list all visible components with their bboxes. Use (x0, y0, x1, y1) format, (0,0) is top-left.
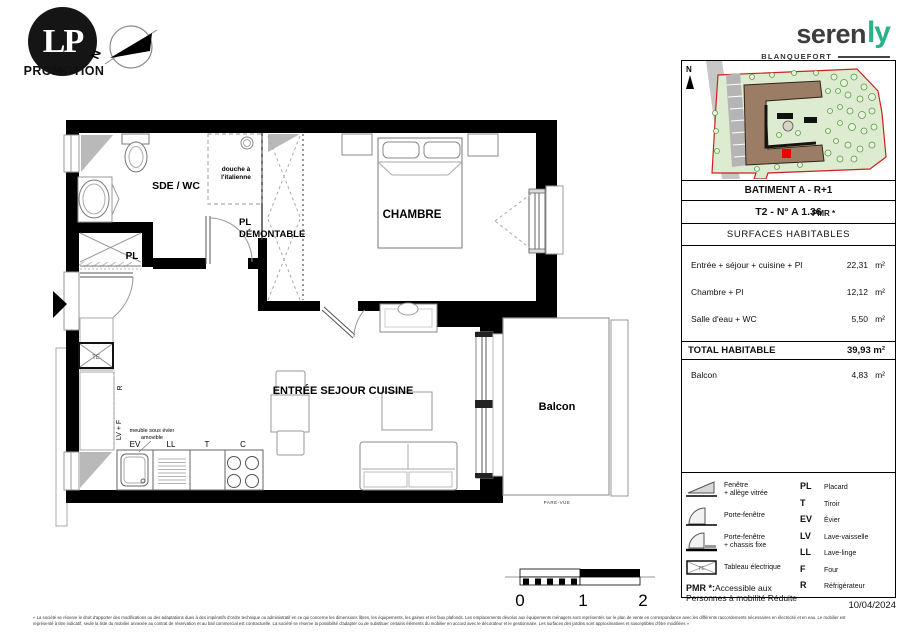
balcony-door (475, 332, 503, 478)
surfaces-title: SURFACES HABITABLES (682, 224, 895, 246)
site-map-north-label: N (686, 65, 692, 74)
pl-demontable-label-2: DÉMONTABLE (239, 229, 305, 240)
sink (121, 454, 148, 486)
scale-0: 0 (515, 591, 524, 610)
abbr-row: FFour (800, 564, 892, 574)
balcon-row: Balcon 4,83 m² (682, 360, 895, 380)
surface-row: Chambre + Pl 12,12 m² (691, 287, 885, 297)
legend-abbreviations: PLPlacard TTiroir EVÉvier LVLave-vaissel… (800, 481, 892, 597)
ll-label: LL (167, 440, 176, 449)
total-row: TOTAL HABITABLE 39,93 m² (682, 341, 895, 360)
legal-line-2: représenté à titre indicatif, seule la l… (33, 621, 895, 627)
pillow (424, 142, 460, 158)
porte-fenetre-chassis-icon (686, 531, 718, 553)
unit-title-row: T2 - N° A 1.36 PMR * (682, 201, 895, 224)
plan-date: 10/04/2024 (681, 600, 896, 611)
shower-label-2: l'italienne (221, 174, 251, 181)
legal-text: « La société se réserve le droit d'appor… (33, 615, 895, 626)
floorplan-sheet: LP PROMOTION N seren ly BLANQUEFORT (0, 0, 900, 636)
site-map: N (682, 61, 895, 181)
window-allege-icon (686, 479, 718, 501)
bedroom-window (495, 186, 563, 254)
fridge-niche (80, 372, 114, 450)
shower: douche à l'italienne (208, 134, 262, 204)
chair (277, 431, 304, 455)
sde-wc-label: SDE / WC (152, 180, 200, 192)
legend-item: Porte-fenêtre + chassis fixe (686, 531, 798, 553)
pl-demontable-label-1: PL (239, 217, 251, 228)
svg-text:TE: TE (698, 566, 705, 572)
pare-vue-label: PARE-VUE (544, 500, 571, 505)
abbr-row: RRéfrigérateur (800, 580, 892, 590)
surface-row: Entrée + séjour + cuisine + Pl 22,31 m² (691, 260, 885, 270)
pmr-tag: PMR * (812, 209, 835, 218)
legend: Fenêtre + allège vitrée Porte-fenêtre (682, 472, 895, 597)
unit-marker (782, 149, 791, 158)
legal-line-1: « La société se réserve le droit d'appor… (33, 615, 895, 621)
dining-table (271, 395, 309, 432)
r-label: R (117, 385, 124, 390)
meuble-label-1: meuble sous évier (130, 428, 175, 434)
t-label: T (205, 440, 210, 449)
abbr-row: TTiroir (800, 498, 892, 508)
bedroom-furniture (342, 134, 498, 248)
surface-row: Salle d'eau + WC 5,50 m² (691, 314, 885, 324)
kitchen: TE EV LL T C meuble sous évier am (79, 318, 263, 490)
abbr-row: EVÉvier (800, 514, 892, 524)
legend-item: Fenêtre + allège vitrée (686, 479, 798, 501)
sejour-label: ENTRÉE SEJOUR CUISINE (273, 384, 414, 397)
balcony-label: Balcon (539, 401, 576, 413)
c-label: C (240, 440, 246, 449)
batiment-title: BATIMENT A - R+1 (682, 181, 895, 201)
pare-vue-screen (611, 320, 628, 496)
porte-fenetre-icon (686, 505, 718, 527)
legend-item: TE Tableau électrique (686, 557, 798, 579)
info-panel: N BATIMENT A - R+1 T2 - N° A 1.36 PMR * … (681, 60, 896, 598)
closet-pl-label: PL (126, 251, 139, 262)
scale-bar: 0 1 2 (505, 569, 655, 610)
coffee-table (382, 392, 432, 430)
abbr-row: LLLave-linge (800, 547, 892, 557)
te-label: TE (92, 355, 100, 361)
nightstand (342, 134, 372, 155)
scale-1: 1 (578, 591, 587, 610)
pillow (383, 142, 419, 158)
abbr-row: LVLave-vaisselle (800, 531, 892, 541)
legend-item: Porte-fenêtre (686, 505, 798, 527)
ev-label: EV (130, 440, 141, 449)
shower-label-1: douche à (222, 166, 251, 173)
surface-rows: Entrée + séjour + cuisine + Pl 22,31 m² … (682, 246, 895, 341)
meuble-label-2: amovible (141, 435, 163, 441)
lvf-label: LV + F (116, 420, 123, 440)
balcony: Balcon PARE-VUE (503, 318, 628, 505)
nightstand (468, 134, 498, 156)
bedroom-door (322, 307, 365, 338)
tableau-electrique-icon: TE (686, 557, 718, 579)
chambre-label: CHAMBRE (383, 209, 442, 221)
closet-pl-demontable: PL DÉMONTABLE (239, 134, 305, 300)
scale-2: 2 (638, 591, 647, 610)
abbr-row: PLPlacard (800, 481, 892, 491)
